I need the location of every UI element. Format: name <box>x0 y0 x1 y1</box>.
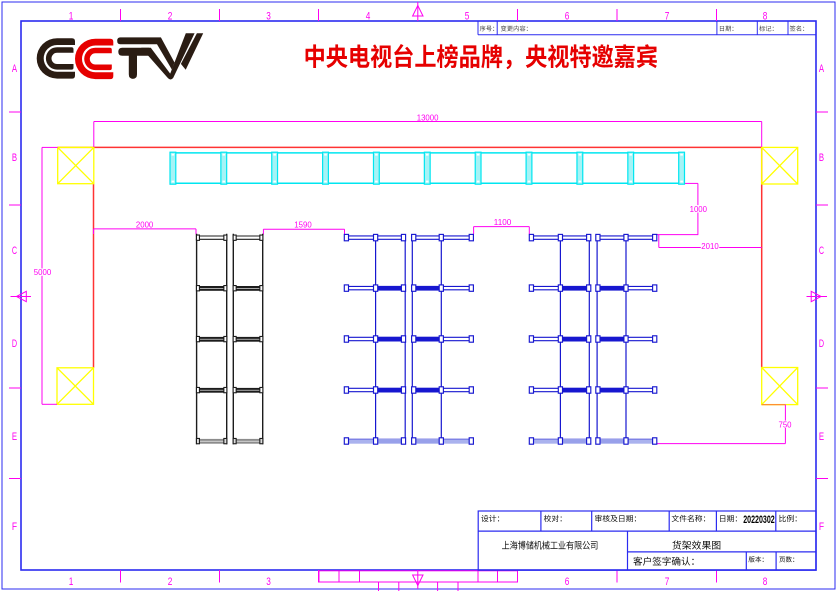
svg-text:2010: 2010 <box>701 241 719 251</box>
svg-text:750: 750 <box>778 419 791 429</box>
svg-text:6: 6 <box>565 11 570 23</box>
svg-text:8: 8 <box>763 11 768 23</box>
svg-text:A: A <box>819 63 825 75</box>
svg-text:F: F <box>12 521 17 533</box>
svg-text:3: 3 <box>266 576 271 588</box>
svg-text:4: 4 <box>366 11 371 23</box>
svg-text:1100: 1100 <box>494 217 512 227</box>
svg-text:20220302: 20220302 <box>743 514 775 526</box>
svg-text:1: 1 <box>69 576 74 588</box>
svg-text:E: E <box>12 431 17 443</box>
svg-text:1: 1 <box>69 11 74 23</box>
svg-text:D: D <box>12 338 17 350</box>
svg-text:C: C <box>12 245 17 257</box>
svg-text:E: E <box>819 431 824 443</box>
svg-text:8: 8 <box>763 576 768 588</box>
svg-text:13000: 13000 <box>417 112 439 122</box>
svg-text:B: B <box>819 152 824 164</box>
svg-text:1000: 1000 <box>690 204 708 214</box>
svg-text:D: D <box>819 338 824 350</box>
svg-text:2: 2 <box>168 576 173 588</box>
svg-text:7: 7 <box>665 11 670 23</box>
svg-text:C: C <box>819 245 824 257</box>
svg-text:5: 5 <box>465 11 470 23</box>
svg-text:5000: 5000 <box>34 267 52 277</box>
svg-text:B: B <box>12 152 17 164</box>
svg-text:2000: 2000 <box>136 219 154 229</box>
svg-text:F: F <box>819 521 824 533</box>
svg-text:3: 3 <box>266 11 271 23</box>
svg-text:A: A <box>12 63 18 75</box>
svg-text:2: 2 <box>168 11 173 23</box>
svg-text:1590: 1590 <box>294 219 312 229</box>
svg-text:6: 6 <box>565 576 570 588</box>
svg-text:7: 7 <box>665 576 670 588</box>
